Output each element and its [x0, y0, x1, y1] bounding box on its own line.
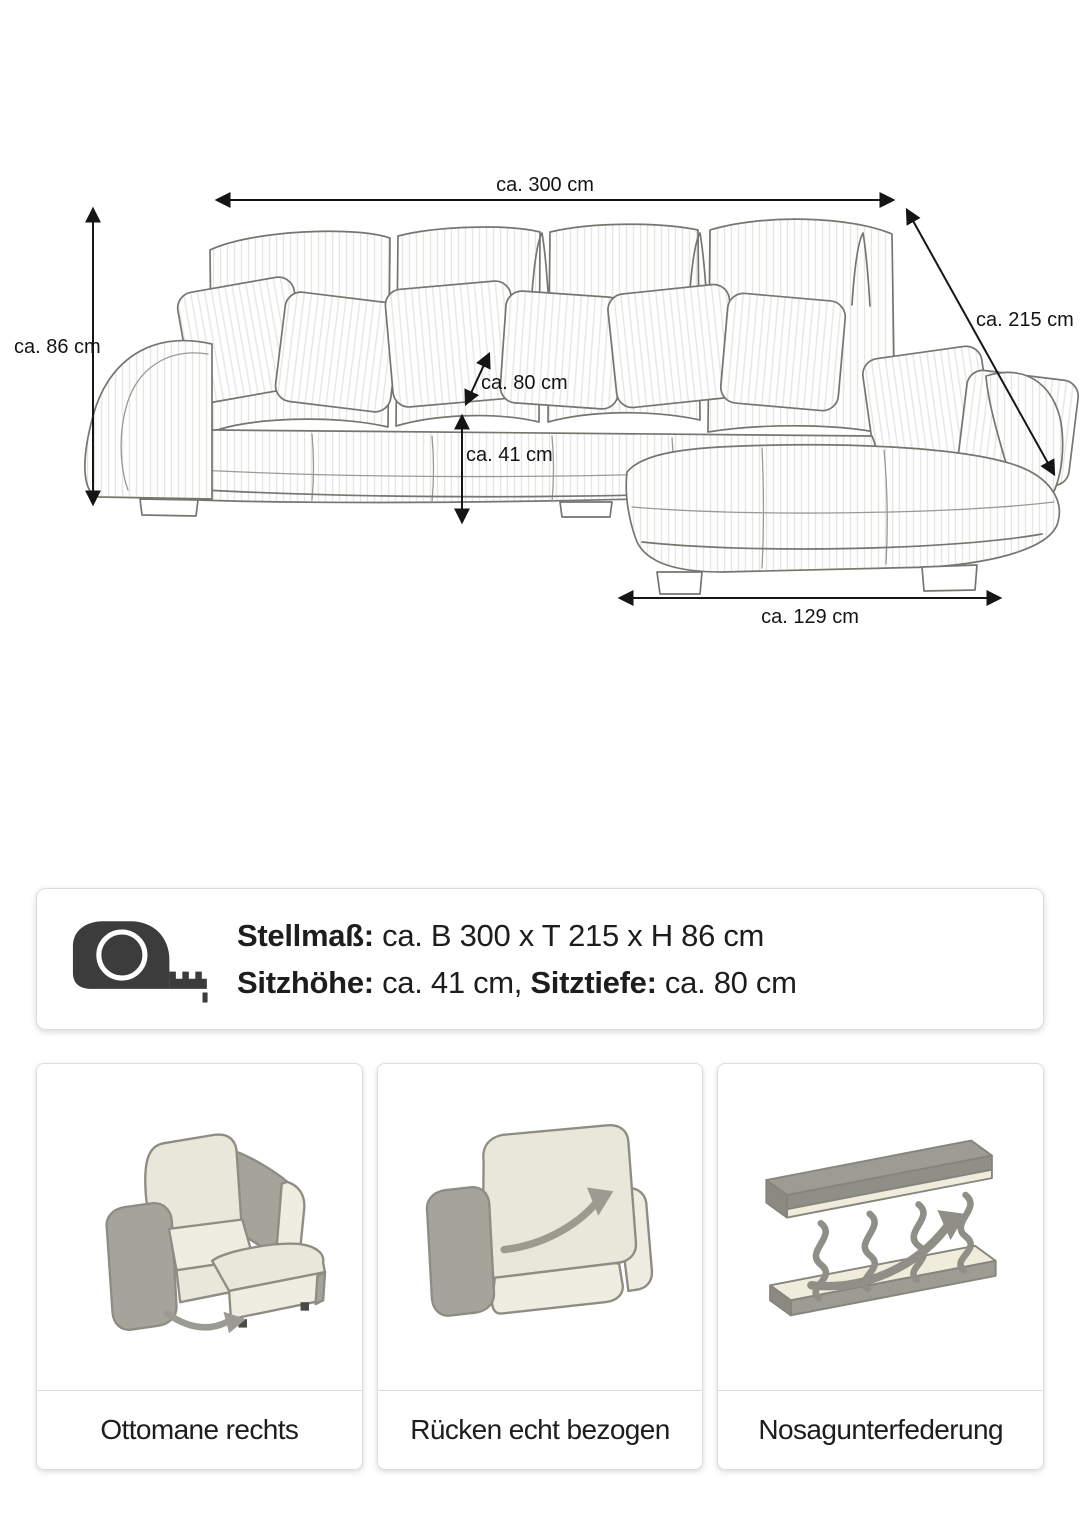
dimension-label-ottoman-width: ca. 129 cm: [660, 606, 960, 628]
feature-label-back-upholstered: Rücken echt bezogen: [378, 1391, 703, 1469]
sitzhoehe-label: Sitzhöhe:: [237, 965, 374, 1000]
measuring-tape-icon: [37, 914, 237, 1004]
feature-label-nosag-springs: Nosagunterfederung: [718, 1391, 1043, 1469]
sitztiefe-value: ca. 80 cm: [657, 965, 797, 1000]
feature-cards: Ottomane rechts Rücken echt bezogen: [36, 1063, 1044, 1470]
dimension-label-depth: ca. 215 cm: [976, 309, 1074, 331]
dimension-label-seat-height: ca. 41 cm: [466, 444, 553, 466]
info-line-1: Stellmaß: ca. B 300 x T 215 x H 86 cm: [237, 912, 797, 959]
stellmass-label: Stellmaß:: [237, 918, 374, 953]
dimension-label-seat-depth: ca. 80 cm: [481, 372, 568, 394]
sitztiefe-label: Sitztiefe:: [530, 965, 656, 1000]
feature-card-nosag-springs: Nosagunterfederung: [717, 1063, 1044, 1470]
feature-card-back-upholstered: Rücken echt bezogen: [377, 1063, 704, 1470]
sofa-lineart: [85, 219, 1080, 594]
dimension-label-height: ca. 86 cm: [14, 336, 101, 358]
ottoman-right-illustration: [37, 1064, 362, 1391]
nosag-springs-illustration: [718, 1064, 1043, 1391]
feature-card-ottoman-right: Ottomane rechts: [36, 1063, 363, 1470]
dimensions-text: Stellmaß: ca. B 300 x T 215 x H 86 cm Si…: [237, 912, 797, 1006]
feature-label-ottoman-right: Ottomane rechts: [37, 1391, 362, 1469]
back-upholstered-illustration: [378, 1064, 703, 1391]
stellmass-value: ca. B 300 x T 215 x H 86 cm: [374, 918, 764, 953]
dimension-label-width: ca. 300 cm: [395, 174, 695, 196]
sofa-sketch: [0, 0, 1080, 868]
sitzhoehe-value: ca. 41 cm,: [374, 965, 531, 1000]
dimensions-info-card: Stellmaß: ca. B 300 x T 215 x H 86 cm Si…: [36, 888, 1044, 1030]
sofa-dimension-diagram: ca. 300 cm ca. 215 cm ca. 86 cm ca. 80 c…: [0, 0, 1080, 888]
info-line-2: Sitzhöhe: ca. 41 cm, Sitztiefe: ca. 80 c…: [237, 959, 797, 1006]
